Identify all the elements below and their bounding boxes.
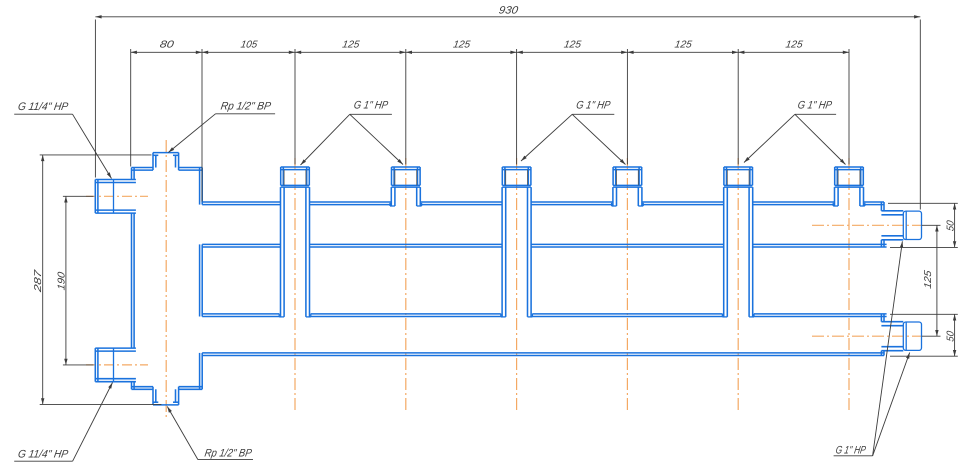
svg-text:125: 125	[341, 39, 360, 50]
svg-text:125: 125	[923, 269, 934, 289]
svg-text:287: 287	[33, 269, 44, 294]
svg-text:930: 930	[498, 4, 519, 16]
svg-text:80: 80	[159, 39, 175, 50]
svg-text:G 11/4" HP: G 11/4" HP	[17, 101, 69, 113]
svg-text:Rp 1/2" BP: Rp 1/2" BP	[220, 100, 272, 112]
svg-text:50: 50	[946, 330, 957, 343]
svg-text:G 11/4" HP: G 11/4" HP	[17, 448, 69, 460]
svg-text:125: 125	[674, 39, 693, 50]
svg-text:G 1" HP: G 1" HP	[353, 100, 389, 112]
svg-text:G 1" HP: G 1" HP	[835, 445, 867, 457]
svg-text:190: 190	[57, 271, 68, 291]
svg-text:125: 125	[452, 39, 471, 50]
svg-text:50: 50	[946, 219, 957, 232]
svg-text:105: 105	[240, 39, 259, 50]
svg-text:125: 125	[785, 39, 804, 50]
svg-text:G 1" HP: G 1" HP	[797, 100, 833, 112]
svg-text:Rp 1/2" BP: Rp 1/2" BP	[204, 448, 253, 460]
svg-text:125: 125	[563, 39, 582, 50]
svg-text:G 1" HP: G 1" HP	[575, 100, 611, 112]
